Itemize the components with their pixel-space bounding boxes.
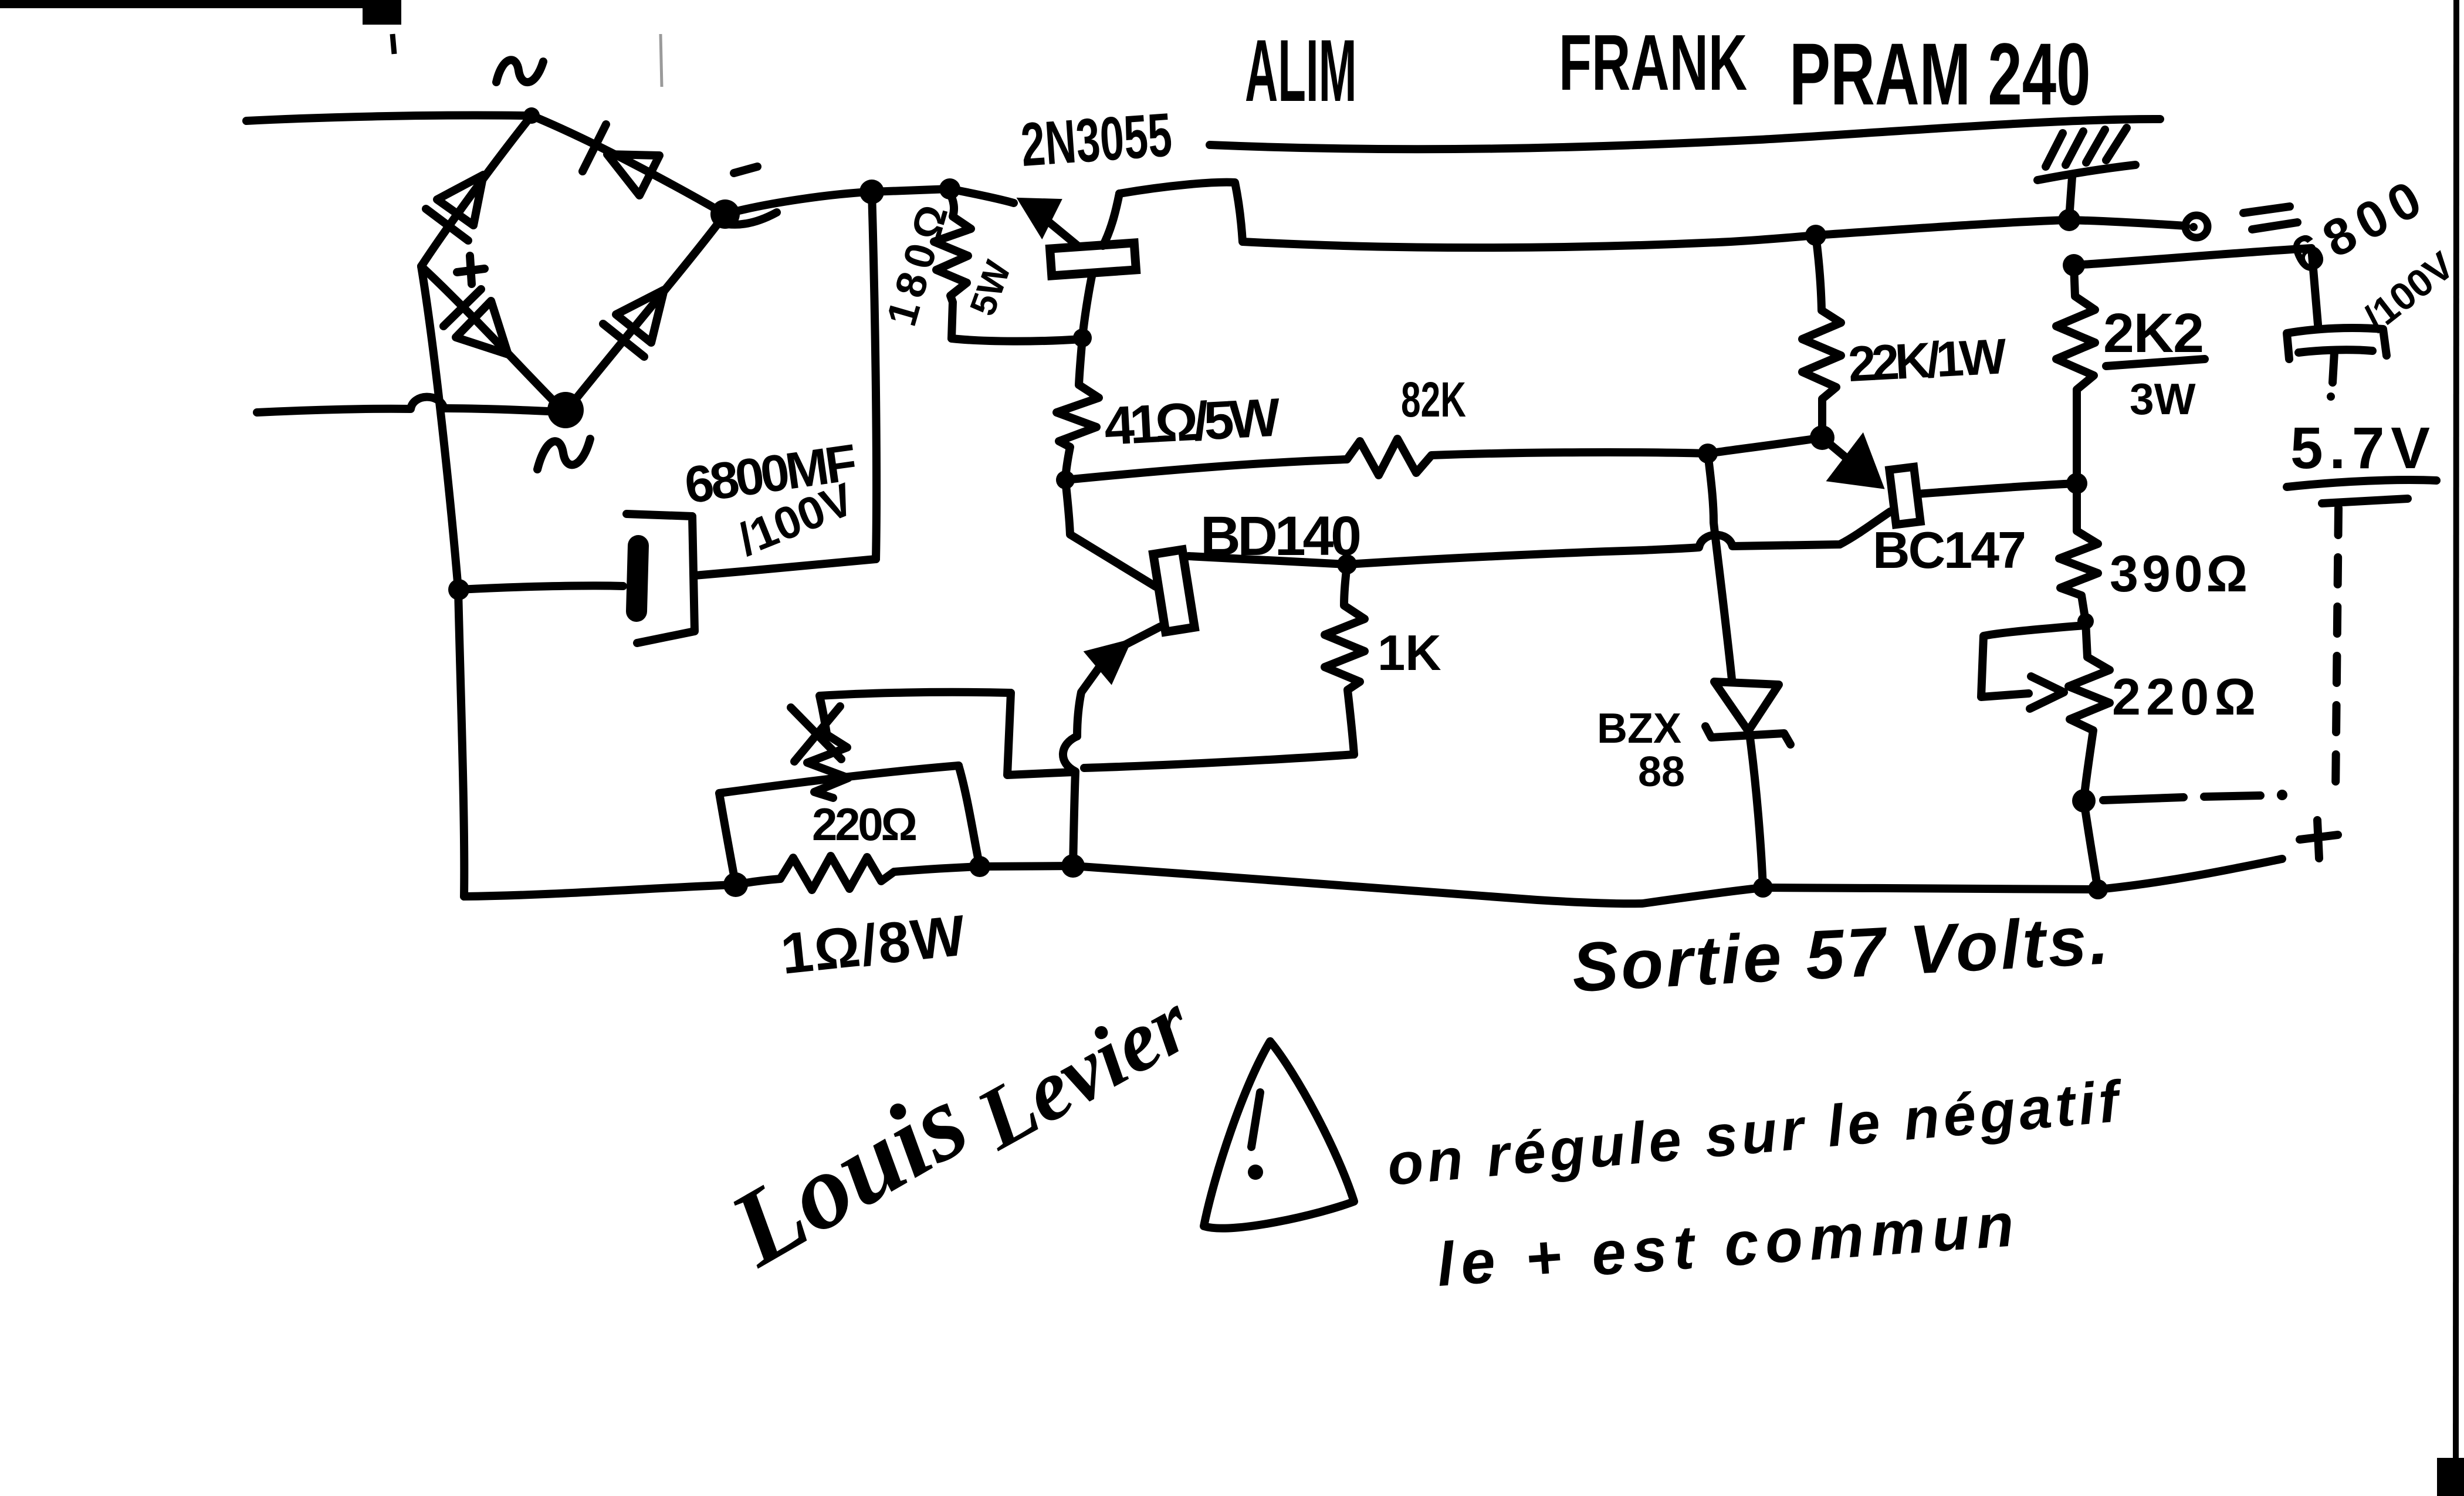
svg-text:1K: 1K [1377,625,1441,681]
svg-text:88: 88 [1638,749,1685,796]
svg-text:22K/1W: 22K/1W [1847,329,2008,392]
svg-text:BC147: BC147 [1873,521,2026,579]
svg-text:PRAM 240: PRAM 240 [1789,26,2091,124]
svg-text:390Ω: 390Ω [2110,544,2248,603]
svg-text:3W: 3W [2130,374,2196,424]
svg-text:82K: 82K [1401,372,1466,427]
svg-text:2K2: 2K2 [2103,302,2204,364]
svg-text:BZX: BZX [1597,705,1681,752]
svg-text:41Ω/5W: 41Ω/5W [1103,387,1282,456]
svg-text:2N3055: 2N3055 [1018,100,1174,180]
svg-text:5.7V: 5.7V [2290,415,2430,481]
svg-text:220Ω: 220Ω [2112,668,2256,726]
svg-text:ALIM: ALIM [1245,22,1357,120]
svg-text:220Ω: 220Ω [812,798,918,850]
svg-text:FRANK: FRANK [1559,19,1747,107]
